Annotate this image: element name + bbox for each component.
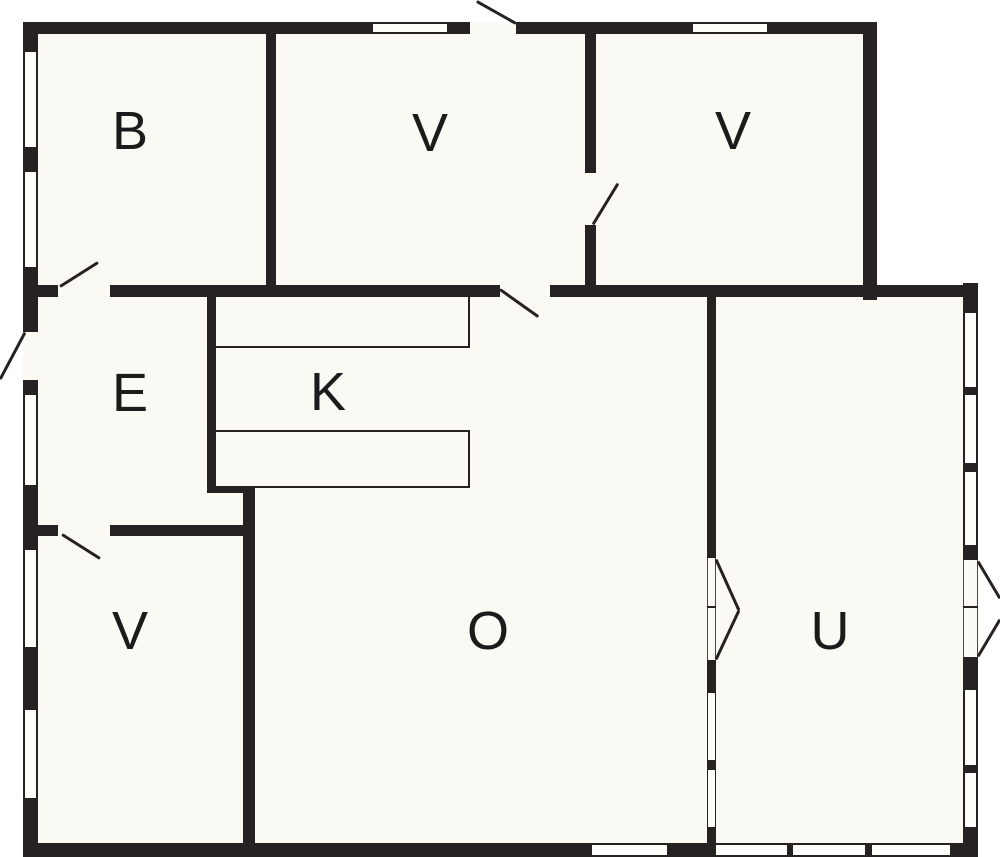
window-right-2: [963, 395, 978, 463]
door-leaf-meeting-u-exterior: [963, 606, 978, 608]
room-label-b: B: [112, 104, 148, 158]
window-bottom-1: [592, 843, 667, 857]
wall-u-top: [860, 285, 978, 297]
kitchen-counter-upper: [214, 295, 470, 348]
window-right-5: [963, 773, 978, 827]
room-label-u: U: [811, 604, 850, 658]
window-bottom-3: [793, 843, 865, 857]
wall-v2-right: [863, 22, 877, 300]
window-top-2: [693, 22, 767, 34]
window-left-5: [23, 710, 38, 798]
room-label-e: E: [112, 366, 148, 420]
door-opening-b-e: [58, 285, 110, 297]
building-interior-right-wing: [860, 285, 978, 857]
window-left-3: [23, 395, 38, 485]
window-right-4: [963, 690, 978, 765]
room-label-v3: V: [112, 604, 148, 658]
window-left-4: [23, 550, 38, 647]
window-bottom-4: [872, 843, 950, 857]
wall-v3-o-divider: [243, 483, 255, 843]
room-label-v2: V: [715, 104, 751, 158]
door-leaf-meeting-o-u: [707, 606, 716, 608]
door-swing-u-exterior-upper: [977, 561, 1000, 600]
floor-plan: B V V E K V O U: [0, 0, 1000, 857]
window-right-3: [963, 472, 978, 545]
window-right-1: [963, 313, 978, 387]
door-opening-u-exterior: [963, 560, 978, 657]
room-label-o: O: [467, 604, 509, 658]
window-left-1: [23, 52, 38, 147]
kitchen-counter-lower: [214, 430, 470, 488]
window-top-1: [373, 22, 447, 34]
opening-o-u-2: [707, 770, 716, 827]
door-opening-o-u: [707, 558, 716, 660]
room-label-k: K: [310, 365, 346, 419]
window-left-2: [23, 172, 38, 267]
door-opening-e-exterior: [23, 332, 38, 380]
wall-b-v1-divider: [266, 34, 276, 285]
door-swing-u-exterior-lower: [977, 619, 1000, 658]
wall-v1-v2-divider: [585, 34, 596, 285]
opening-o-u-1: [707, 693, 716, 760]
window-bottom-2: [716, 843, 787, 857]
room-label-v1: V: [412, 106, 448, 160]
door-opening-entrance-top: [470, 22, 516, 34]
